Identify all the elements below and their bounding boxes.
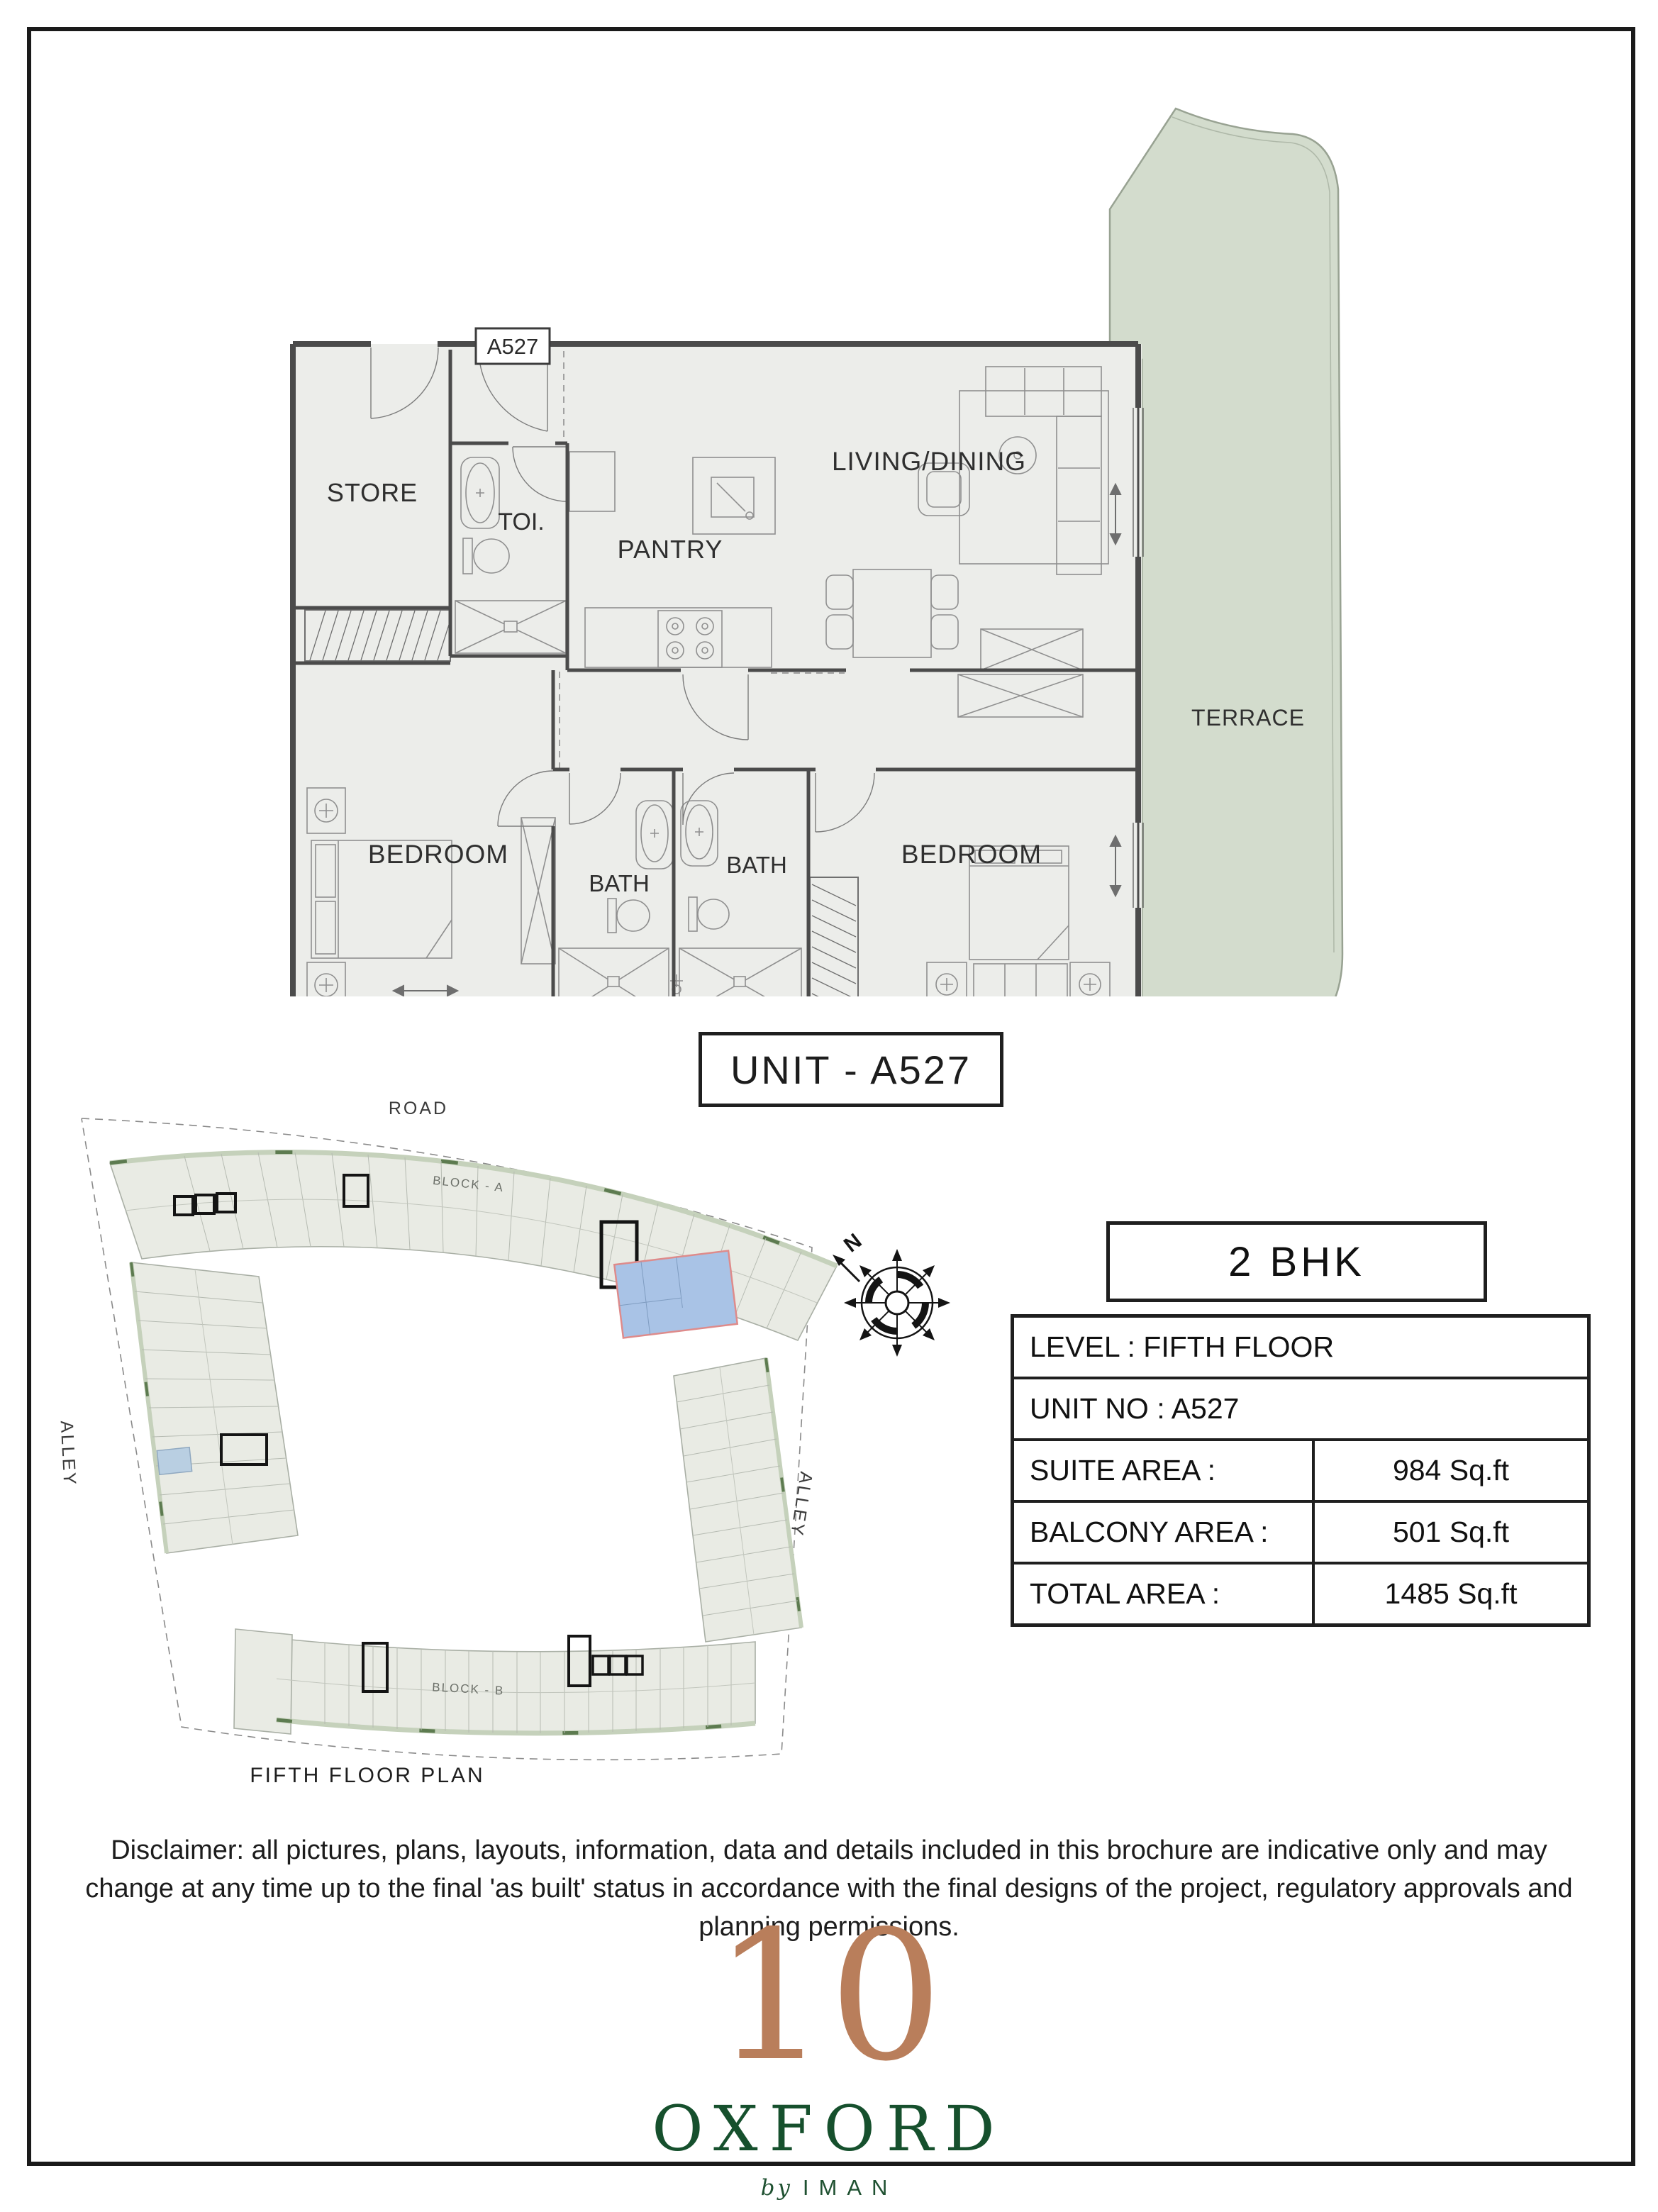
table-row-level: LEVEL : FIFTH FLOOR [1014, 1318, 1587, 1377]
alley-left-label: ALLEY [57, 1420, 80, 1486]
total-area-value: 1485 Sq.ft [1315, 1564, 1587, 1623]
logo-brand-text: IMAN [803, 2175, 898, 2200]
suite-area-label: SUITE AREA : [1014, 1441, 1315, 1500]
site-plan-drawing: BLOCK - A BLOCK - B [43, 1096, 950, 1798]
brand-logo: 10 OXFORD byIMAN [0, 1908, 1658, 2201]
total-area-label: TOTAL AREA : [1014, 1564, 1315, 1623]
bedroom-left-label: BEDROOM [368, 840, 508, 869]
table-row-unit-no: UNIT NO : A527 [1014, 1377, 1587, 1438]
terrace-label: TERRACE [1191, 705, 1305, 730]
unit-tag-box: A527 [476, 328, 550, 364]
unit-tag-text: A527 [487, 334, 538, 359]
unit-title-text: UNIT - A527 [730, 1047, 972, 1093]
unit-no-label: UNIT NO : A527 [1014, 1379, 1587, 1438]
unit-type-text: 2 BHK [1228, 1238, 1365, 1286]
logo-wordmark: OXFORD [0, 2092, 1658, 2165]
living-dining-label: LIVING/DINING [832, 447, 1026, 476]
suite-area-value: 984 Sq.ft [1315, 1441, 1587, 1500]
alley-right-label: ALLEY [786, 1470, 816, 1538]
road-label: ROAD [389, 1099, 448, 1118]
logo-by-text: by [761, 2175, 793, 2201]
block-b-wing [674, 1358, 801, 1642]
logo-number: 10 [0, 1908, 1658, 2086]
unit-type-badge: 2 BHK [1106, 1221, 1487, 1302]
toilet-label: TOI. [498, 508, 545, 535]
block-b-band: BLOCK - B [234, 1629, 755, 1734]
pool-a [157, 1447, 191, 1475]
table-row-suite-area: SUITE AREA : 984 Sq.ft [1014, 1438, 1587, 1500]
floor-plan-drawing: STORE TOI. PANTRY LIVING/DINING BEDROOM … [287, 103, 1351, 996]
balcony-area-label: BALCONY AREA : [1014, 1503, 1315, 1562]
highlighted-unit [614, 1251, 737, 1338]
store-label: STORE [327, 478, 418, 507]
pantry-label: PANTRY [618, 535, 723, 564]
bath-left-label: BATH [589, 870, 650, 896]
compass-icon: N [833, 1229, 950, 1357]
table-row-total-area: TOTAL AREA : 1485 Sq.ft [1014, 1562, 1587, 1623]
level-label: LEVEL : FIFTH FLOOR [1014, 1318, 1587, 1377]
balcony-area-value: 501 Sq.ft [1315, 1503, 1587, 1562]
table-row-balcony-area: BALCONY AREA : 501 Sq.ft [1014, 1500, 1587, 1562]
block-a-wing [131, 1262, 298, 1553]
bedroom-right-label: BEDROOM [901, 840, 1042, 869]
unit-info-table: LEVEL : FIFTH FLOOR UNIT NO : A527 SUITE… [1011, 1314, 1591, 1627]
compass-north-label: N [840, 1229, 866, 1257]
site-plan-caption: FIFTH FLOOR PLAN [250, 1764, 484, 1787]
bath-right-label: BATH [726, 852, 787, 878]
logo-byline: byIMAN [0, 2175, 1658, 2201]
